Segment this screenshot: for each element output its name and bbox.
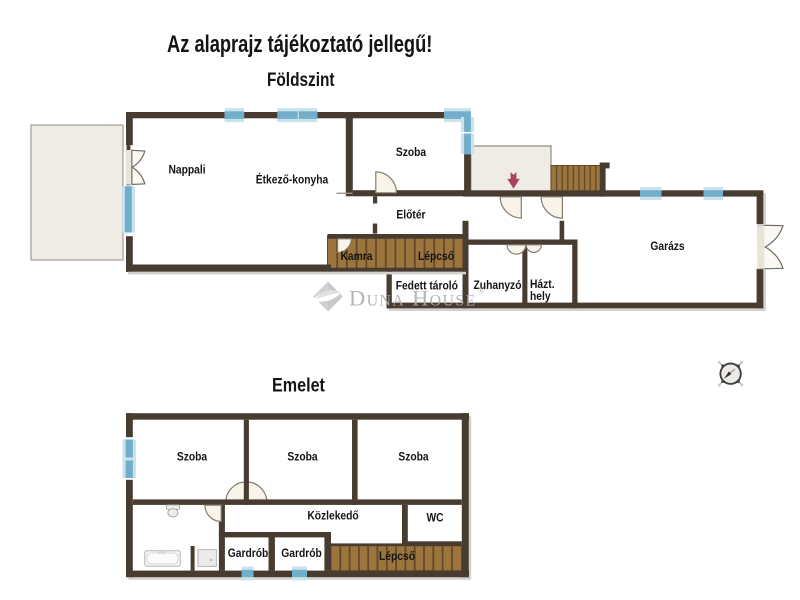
svg-text:Garázs: Garázs (650, 240, 684, 253)
svg-text:Lépcső: Lépcső (418, 250, 454, 263)
svg-text:Gardrób: Gardrób (281, 547, 322, 560)
svg-text:®: ® (478, 286, 485, 297)
svg-text:Előtér: Előtér (396, 209, 426, 222)
svg-text:Szoba: Szoba (177, 451, 208, 464)
svg-text:Szoba: Szoba (287, 451, 318, 464)
svg-text:Nappali: Nappali (168, 164, 205, 177)
svg-text:Emelet: Emelet (272, 374, 325, 396)
svg-text:Az alaprajz tájékoztató jelleg: Az alaprajz tájékoztató jellegű! (167, 31, 432, 58)
svg-text:Lépcső: Lépcső (379, 550, 415, 563)
svg-text:WC: WC (426, 512, 443, 525)
svg-text:Közlekedő: Közlekedő (307, 510, 358, 523)
svg-text:hely: hely (530, 290, 551, 303)
svg-text:Gardrób: Gardrób (228, 547, 269, 560)
svg-text:Étkező-konyha: Étkező-konyha (256, 173, 329, 187)
svg-text:Szoba: Szoba (396, 146, 427, 159)
svg-text:Szoba: Szoba (398, 451, 429, 464)
svg-text:Földszint: Földszint (267, 68, 335, 90)
svg-text:Kamra: Kamra (341, 250, 374, 263)
